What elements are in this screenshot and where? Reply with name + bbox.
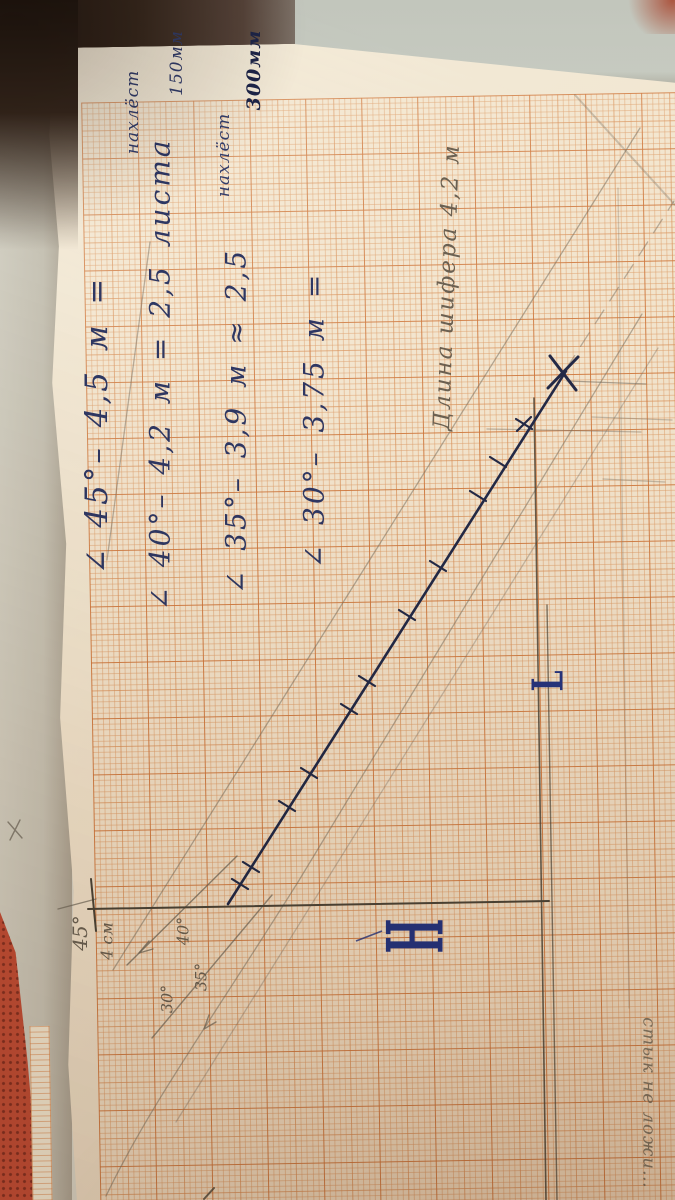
length-letter: L <box>525 670 574 691</box>
overlap-word-2: нахлёст <box>214 113 234 197</box>
angle-label-35: 35° <box>192 963 211 991</box>
angle-label-45: 45° <box>68 915 92 950</box>
formula-30deg: ∠ 30°– 3,75 м = <box>298 272 331 569</box>
height-letter: Н <box>369 919 461 954</box>
pencil-and-ink-drawing <box>0 0 675 1200</box>
angle-label-30: 30° <box>158 985 177 1013</box>
formula-40deg: ∠ 40°– 4,2 м = 2,5 листа <box>144 137 177 610</box>
overlap-value-2: 300мм <box>243 30 265 111</box>
length-label-4cm: 4 см <box>98 922 117 960</box>
tick-marks <box>232 417 532 889</box>
overlap-word-1: нахлёст <box>123 70 143 154</box>
photo-of-graph-paper-diagram: ∠ 45°– 4,5 м = ∠ 40°– 4,2 м = 2,5 листа … <box>0 0 675 1200</box>
baseline <box>88 901 549 909</box>
formula-45deg: ∠ 45°– 4,5 м = <box>79 276 115 575</box>
end-x-mark <box>548 356 578 390</box>
formula-35deg: ∠ 35°– 3,9 м ≈ 2,5 <box>220 248 253 594</box>
overlap-value-1: 150мм <box>167 30 187 96</box>
angle-label-40: 40° <box>174 917 193 945</box>
main-slope-line <box>228 356 578 904</box>
side-note: стык не ложи… <box>639 1017 660 1189</box>
